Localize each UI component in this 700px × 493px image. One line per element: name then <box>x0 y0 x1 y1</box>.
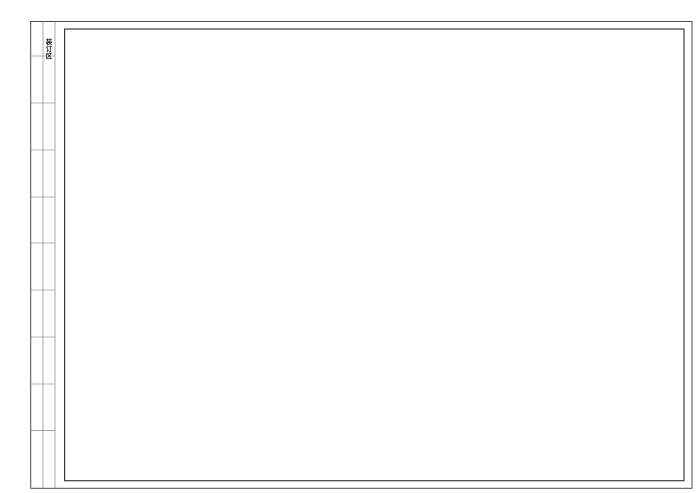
svg-text:装: 装 <box>45 37 53 46</box>
svg-text:订: 订 <box>46 44 53 53</box>
svg-text:区: 区 <box>46 52 53 60</box>
